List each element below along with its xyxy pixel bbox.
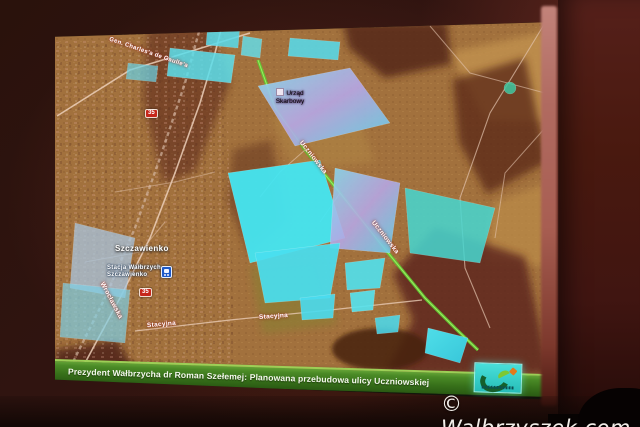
- route-shield-icon-1: 35: [139, 288, 152, 297]
- route-shield-icon-2: 35: [145, 109, 158, 118]
- satellite-map: Gen. Charles'a de Gaulle'a Urząd Skarbow…: [55, 22, 555, 374]
- station-label: Stacja Wałbrzych Szczawienko: [107, 265, 161, 279]
- tax-office-icon: [276, 88, 284, 96]
- photo-of-projection: Gen. Charles'a de Gaulle'a Urząd Skarbow…: [0, 0, 640, 427]
- district-label: Szczawienko: [115, 244, 169, 253]
- logo-swoosh-icon: [477, 364, 513, 395]
- pond: [504, 82, 516, 94]
- tax-office-label: Urząd Skarbowy: [267, 88, 313, 105]
- screen-edge-glow: [541, 6, 557, 406]
- train-station-icon: [161, 266, 172, 278]
- map-service-logo: [474, 362, 523, 393]
- projector-slide: Gen. Charles'a de Gaulle'a Urząd Skarbow…: [55, 22, 555, 400]
- map-graphic: [55, 22, 555, 374]
- watermark: © Walbrzyszek.com: [441, 392, 640, 427]
- room-wall: [558, 0, 640, 427]
- logo-orange-icon: [509, 367, 517, 375]
